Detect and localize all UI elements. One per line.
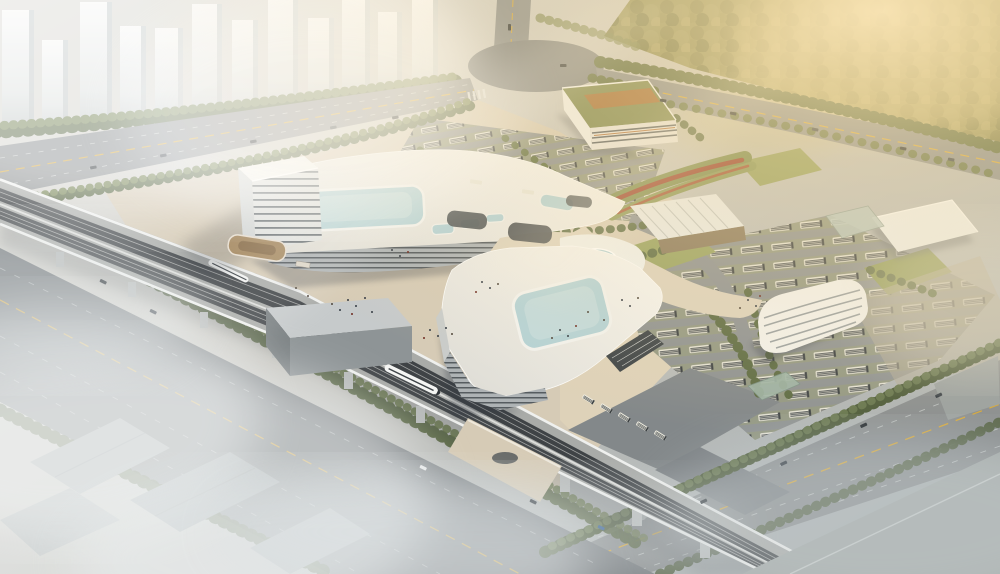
aerial-rendering <box>0 0 1000 574</box>
sun-glow <box>0 0 1000 574</box>
rendering-canvas <box>0 0 1000 574</box>
atmosphere <box>0 0 1000 574</box>
